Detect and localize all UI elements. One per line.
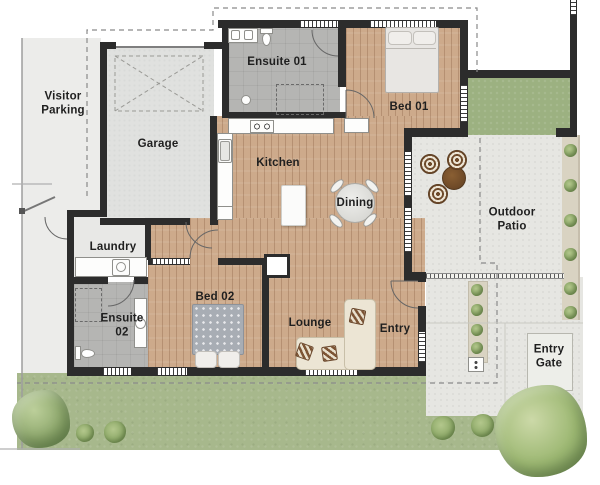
door-arc-entry xyxy=(391,281,418,308)
tree-southeast xyxy=(495,385,587,477)
label-bed-01: Bed 01 xyxy=(390,100,429,114)
label-ensuite-02: Ensuite 02 xyxy=(93,312,151,341)
floor-plan: Visitor Parking Garage Ensuite 01 Kitche… xyxy=(0,0,600,485)
label-laundry: Laundry xyxy=(90,240,137,254)
door-arc-bed01 xyxy=(346,90,374,118)
label-entry-gate: Entry Gate xyxy=(522,343,576,372)
door-arc-ensuite01 xyxy=(312,30,338,56)
door-arc-ensuite02 xyxy=(108,280,134,306)
label-bed-02: Bed 02 xyxy=(196,290,235,304)
side-gate-line xyxy=(22,197,55,212)
bush-southwest xyxy=(12,390,70,448)
garage-door-cross xyxy=(115,56,203,111)
label-garage: Garage xyxy=(138,137,179,151)
door-arc-garage-hall xyxy=(186,222,212,248)
label-dining: Dining xyxy=(337,196,374,210)
label-outdoor-patio: Outdoor Patio xyxy=(475,206,549,235)
door-arc-bed02 xyxy=(190,230,218,258)
label-visitor-parking: Visitor Parking xyxy=(25,90,101,119)
door-arc-laundry-ext xyxy=(45,217,67,239)
setback-dashed xyxy=(17,138,497,383)
label-kitchen: Kitchen xyxy=(256,156,300,170)
label-lounge: Lounge xyxy=(289,316,332,330)
label-ensuite-01: Ensuite 01 xyxy=(247,55,307,69)
gate-hinge xyxy=(19,208,25,214)
label-entry: Entry xyxy=(380,322,410,336)
